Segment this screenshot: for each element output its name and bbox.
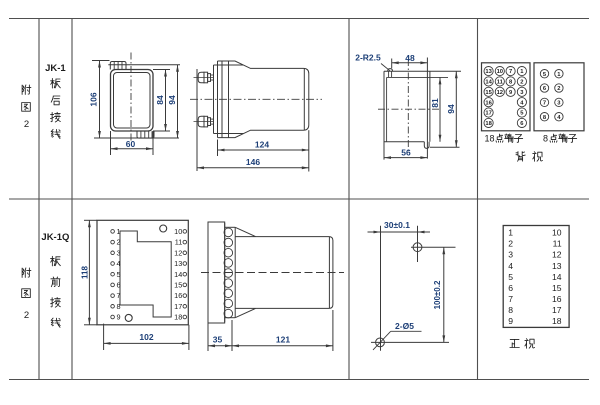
svg-text:12: 12 xyxy=(497,90,503,96)
svg-text:11: 11 xyxy=(175,238,183,247)
svg-text:118: 118 xyxy=(80,265,89,278)
svg-text:9: 9 xyxy=(117,313,121,322)
svg-text:16: 16 xyxy=(174,291,182,300)
svg-text:13: 13 xyxy=(485,69,492,75)
svg-text:8: 8 xyxy=(117,302,121,311)
svg-text:JK-1Q: JK-1Q xyxy=(41,232,69,243)
svg-text:94: 94 xyxy=(167,95,177,105)
svg-text:2: 2 xyxy=(24,310,29,321)
svg-text:35: 35 xyxy=(213,335,223,345)
svg-text:14: 14 xyxy=(485,80,492,86)
svg-text:2-Ø5: 2-Ø5 xyxy=(395,321,414,331)
svg-text:94: 94 xyxy=(446,104,456,114)
svg-text:18: 18 xyxy=(174,313,182,322)
svg-text:10: 10 xyxy=(174,227,182,236)
svg-text:2: 2 xyxy=(557,86,560,92)
svg-text:18: 18 xyxy=(552,316,562,326)
svg-text:15: 15 xyxy=(174,281,182,290)
svg-text:13: 13 xyxy=(552,261,562,271)
svg-text:18: 18 xyxy=(485,121,492,127)
svg-text:4: 4 xyxy=(508,261,513,271)
svg-text:106: 106 xyxy=(89,92,99,106)
svg-text:7: 7 xyxy=(543,100,546,106)
svg-text:10: 10 xyxy=(552,228,562,238)
svg-text:14: 14 xyxy=(552,272,562,282)
svg-text:2: 2 xyxy=(520,80,523,86)
svg-text:102: 102 xyxy=(139,332,153,342)
svg-text:11: 11 xyxy=(497,80,504,86)
svg-text:10: 10 xyxy=(497,69,503,75)
svg-text:3: 3 xyxy=(508,250,513,260)
svg-text:2: 2 xyxy=(117,238,121,247)
svg-text:2-R2.5: 2-R2.5 xyxy=(355,52,381,62)
svg-text:8: 8 xyxy=(543,133,548,143)
svg-text:8: 8 xyxy=(508,305,513,315)
svg-text:17: 17 xyxy=(174,302,182,311)
svg-text:7: 7 xyxy=(508,294,513,304)
svg-text:2: 2 xyxy=(508,239,513,249)
svg-text:12: 12 xyxy=(174,248,182,257)
svg-text:121: 121 xyxy=(276,335,290,345)
svg-text:1: 1 xyxy=(117,227,121,236)
svg-text:84: 84 xyxy=(155,95,165,105)
svg-text:16: 16 xyxy=(552,294,562,304)
svg-text:6: 6 xyxy=(508,283,513,293)
svg-text:4: 4 xyxy=(117,259,121,268)
svg-text:16: 16 xyxy=(485,100,492,106)
svg-text:2: 2 xyxy=(24,119,29,130)
svg-text:13: 13 xyxy=(174,259,182,268)
svg-text:9: 9 xyxy=(508,316,513,326)
svg-text:56: 56 xyxy=(401,148,411,158)
svg-text:17: 17 xyxy=(485,111,491,117)
svg-text:124: 124 xyxy=(255,139,269,149)
svg-text:JK-1: JK-1 xyxy=(45,63,66,74)
svg-text:7: 7 xyxy=(509,69,512,75)
svg-text:30±0.1: 30±0.1 xyxy=(384,220,410,230)
svg-text:5: 5 xyxy=(117,270,121,279)
svg-text:1: 1 xyxy=(508,228,513,238)
svg-text:18: 18 xyxy=(484,133,494,143)
svg-text:12: 12 xyxy=(552,250,562,260)
svg-text:14: 14 xyxy=(174,270,182,279)
svg-text:5: 5 xyxy=(508,272,513,282)
svg-text:17: 17 xyxy=(552,305,562,315)
svg-text:3: 3 xyxy=(117,248,121,257)
svg-text:146: 146 xyxy=(246,157,260,167)
svg-text:15: 15 xyxy=(552,283,562,293)
svg-text:11: 11 xyxy=(553,239,562,249)
svg-text:15: 15 xyxy=(485,90,492,96)
svg-text:60: 60 xyxy=(126,139,136,149)
svg-text:7: 7 xyxy=(117,291,121,300)
svg-text:81: 81 xyxy=(430,98,440,108)
svg-text:48: 48 xyxy=(405,53,415,63)
svg-text:6: 6 xyxy=(117,281,121,290)
svg-text:100±0.2: 100±0.2 xyxy=(433,280,442,309)
